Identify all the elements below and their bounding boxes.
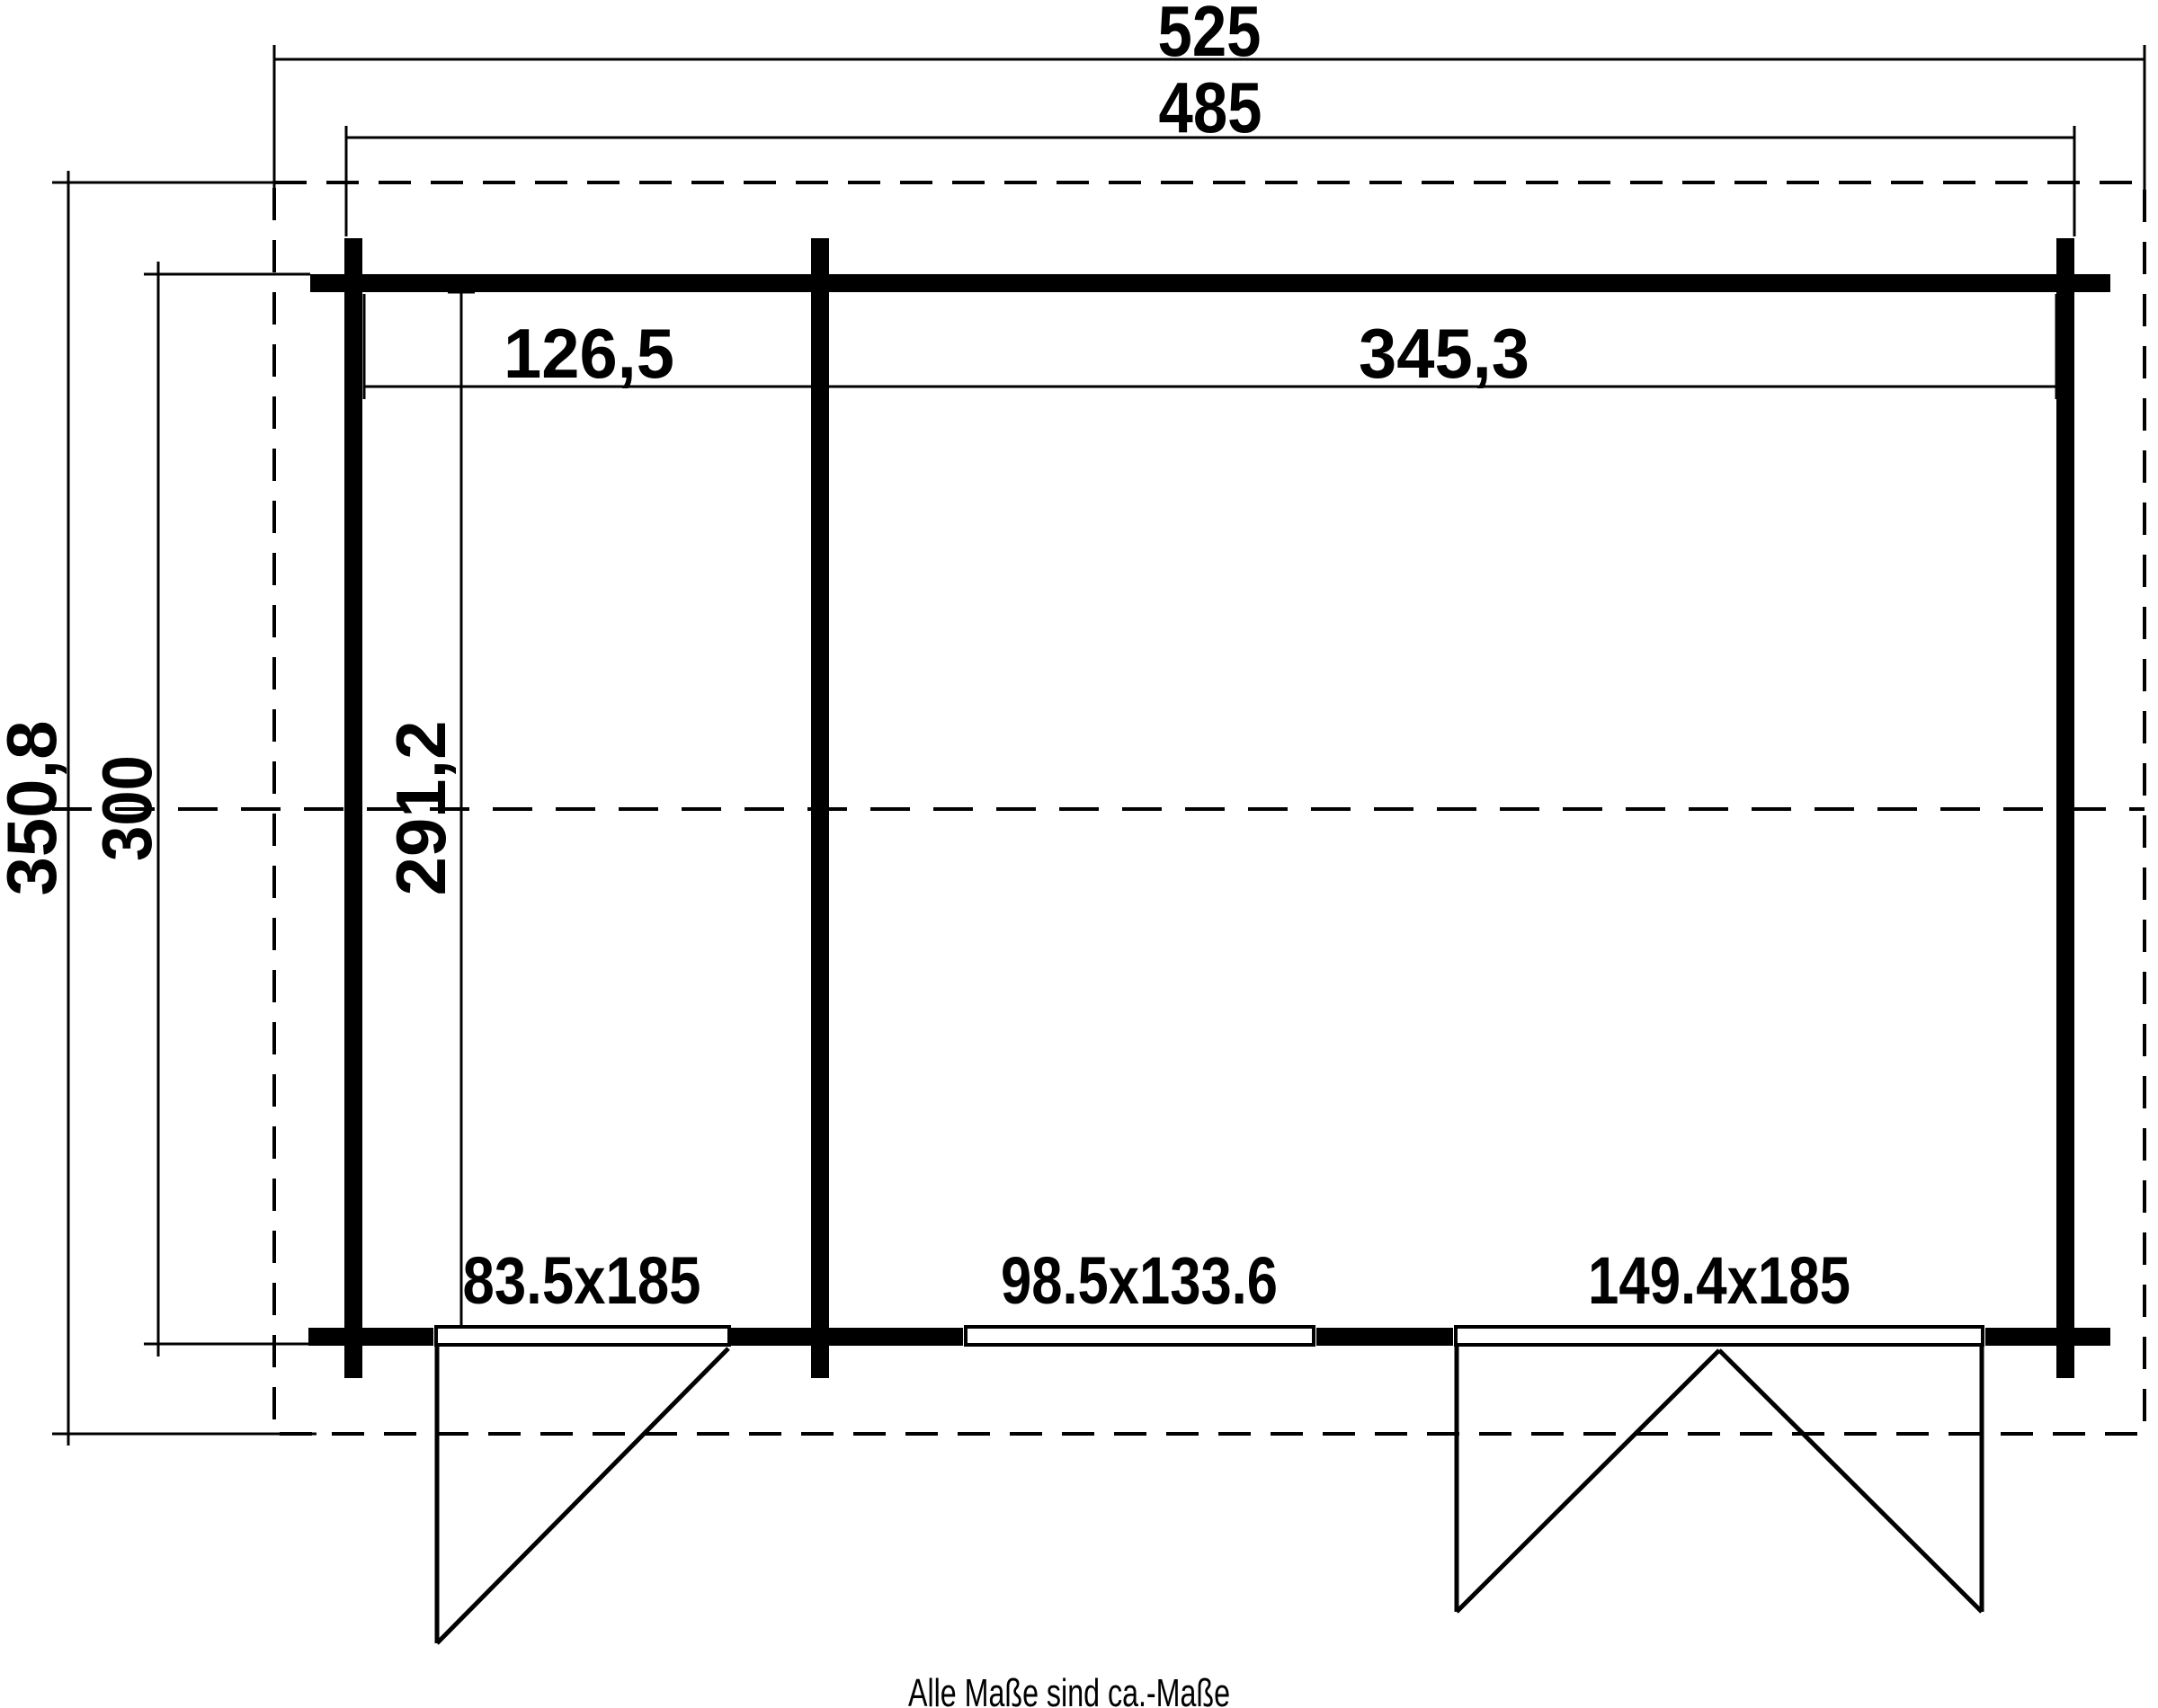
label-left-room-width: 126,5 (504, 314, 674, 393)
label-building-width: 485 (1159, 67, 1262, 147)
label-window-size: 98.5x133.6 (1001, 1243, 1278, 1318)
wall-bottom-segment-3 (1316, 1328, 1453, 1346)
label-overall-width: 525 (1158, 0, 1262, 71)
wall-right (2056, 238, 2074, 1378)
label-double-door-size: 149.4x185 (1588, 1243, 1850, 1318)
window-sill (966, 1327, 1314, 1345)
wall-bottom-segment-1 (308, 1328, 433, 1346)
wall-partition (811, 238, 829, 1378)
wall-top (310, 274, 2110, 292)
label-inner-depth: 291,2 (381, 721, 460, 896)
floor-plan-drawing: 525 485 126,5 345,3 350,8 300 291,2 83.5… (0, 0, 2158, 1708)
label-right-room-width: 345,3 (1359, 314, 1529, 393)
double-door-threshold (1456, 1327, 1983, 1345)
floor-plan-page: 525 485 126,5 345,3 350,8 300 291,2 83.5… (0, 0, 2158, 1708)
label-overall-depth: 350,8 (0, 721, 71, 896)
wall-left (344, 238, 362, 1378)
label-building-depth: 300 (87, 755, 166, 861)
wall-bottom-segment-4 (1985, 1328, 2110, 1346)
double-door-swing-diagonal-left (1457, 1350, 1719, 1612)
label-single-door-size: 83.5x185 (463, 1243, 701, 1318)
single-door-threshold (436, 1327, 729, 1345)
footnote-approximate-dimensions: Alle Maße sind ca.-Maße (908, 1671, 1230, 1708)
double-door-swing-diagonal-right (1719, 1350, 1982, 1612)
wall-bottom-segment-2 (731, 1328, 963, 1346)
single-door-swing-diagonal (437, 1348, 728, 1643)
